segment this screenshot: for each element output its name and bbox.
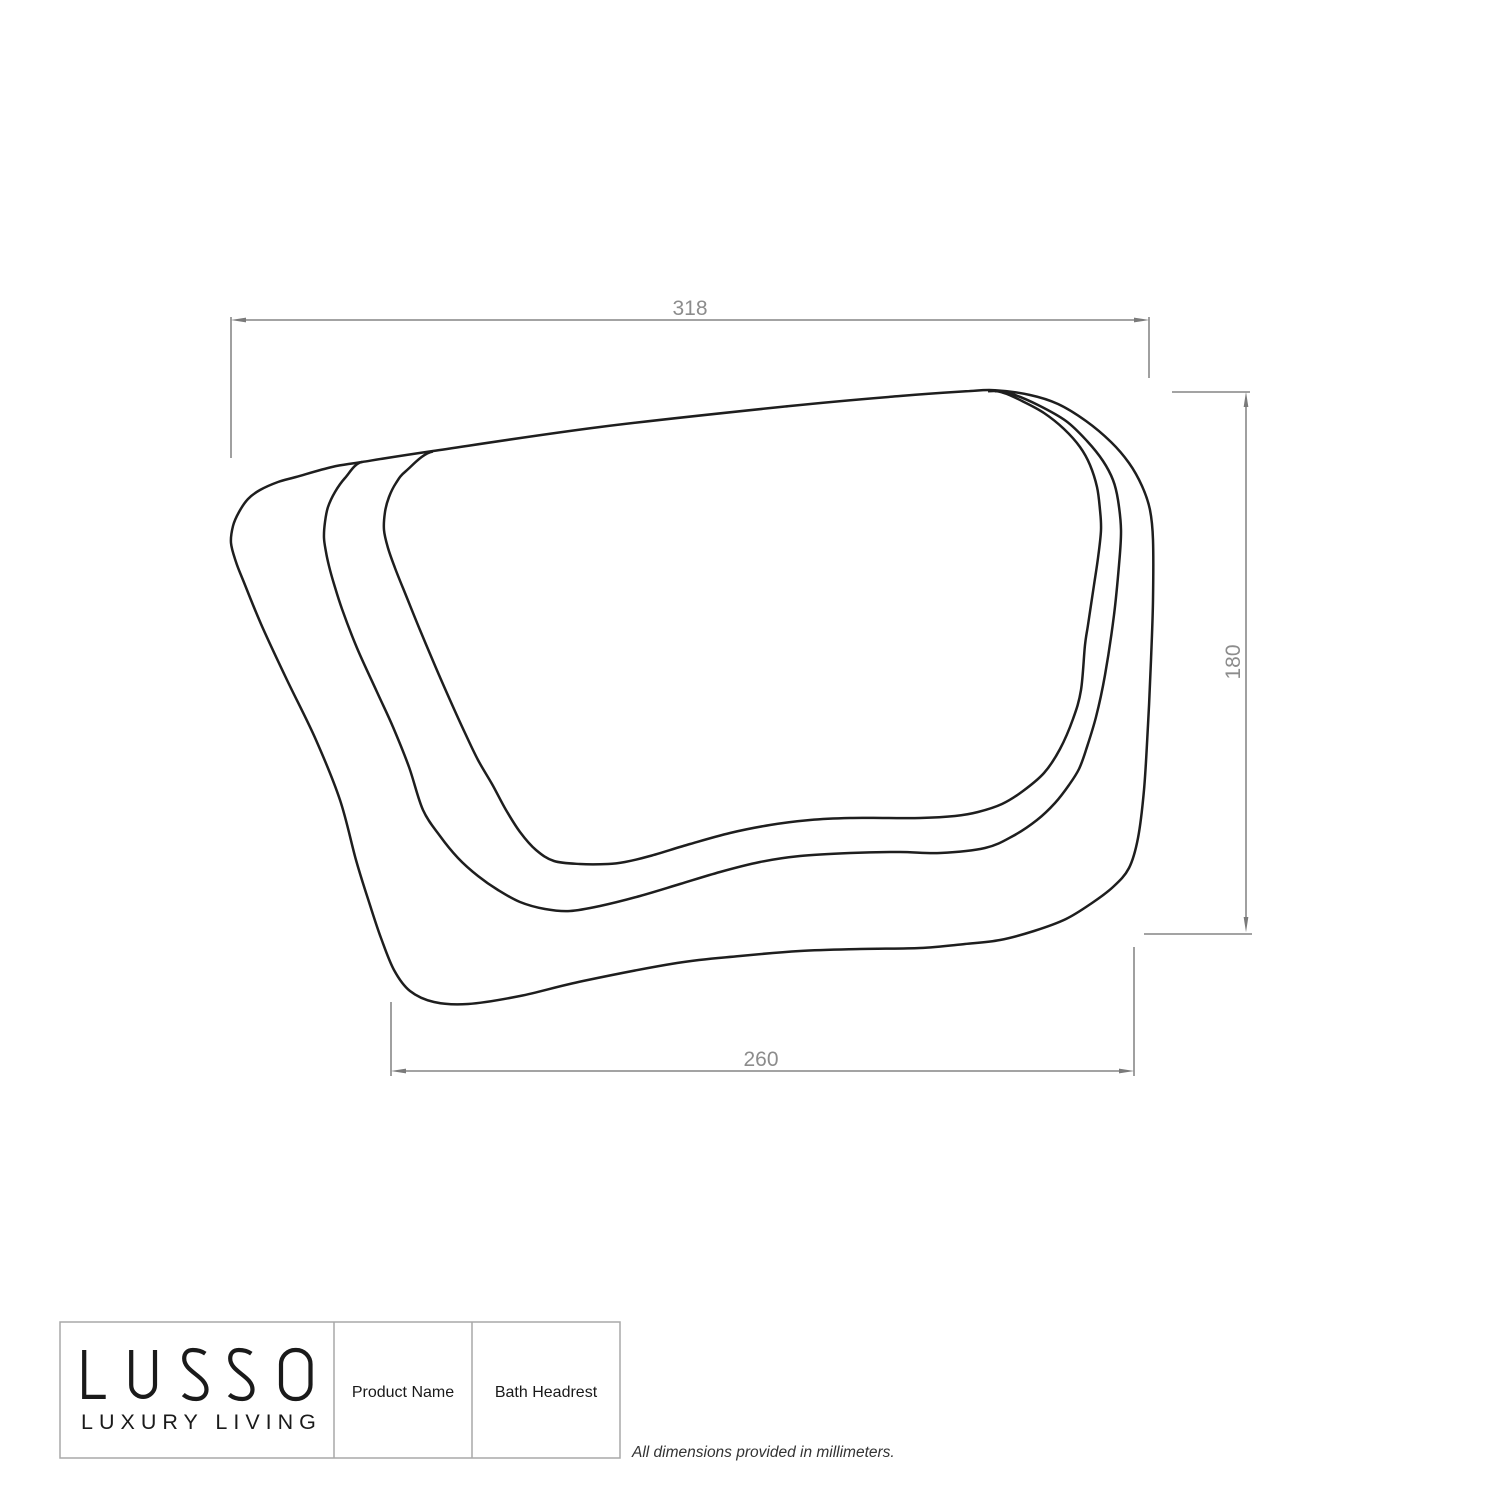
svg-text:Bath Headrest: Bath Headrest [495, 1384, 598, 1401]
svg-text:Product Name: Product Name [352, 1384, 454, 1401]
svg-text:318: 318 [672, 297, 707, 320]
svg-text:180: 180 [1222, 644, 1245, 679]
svg-text:LUXURY LIVING: LUXURY LIVING [81, 1410, 322, 1434]
svg-text:All dimensions provided in mil: All dimensions provided in millimeters. [631, 1444, 895, 1461]
svg-text:260: 260 [743, 1048, 778, 1071]
